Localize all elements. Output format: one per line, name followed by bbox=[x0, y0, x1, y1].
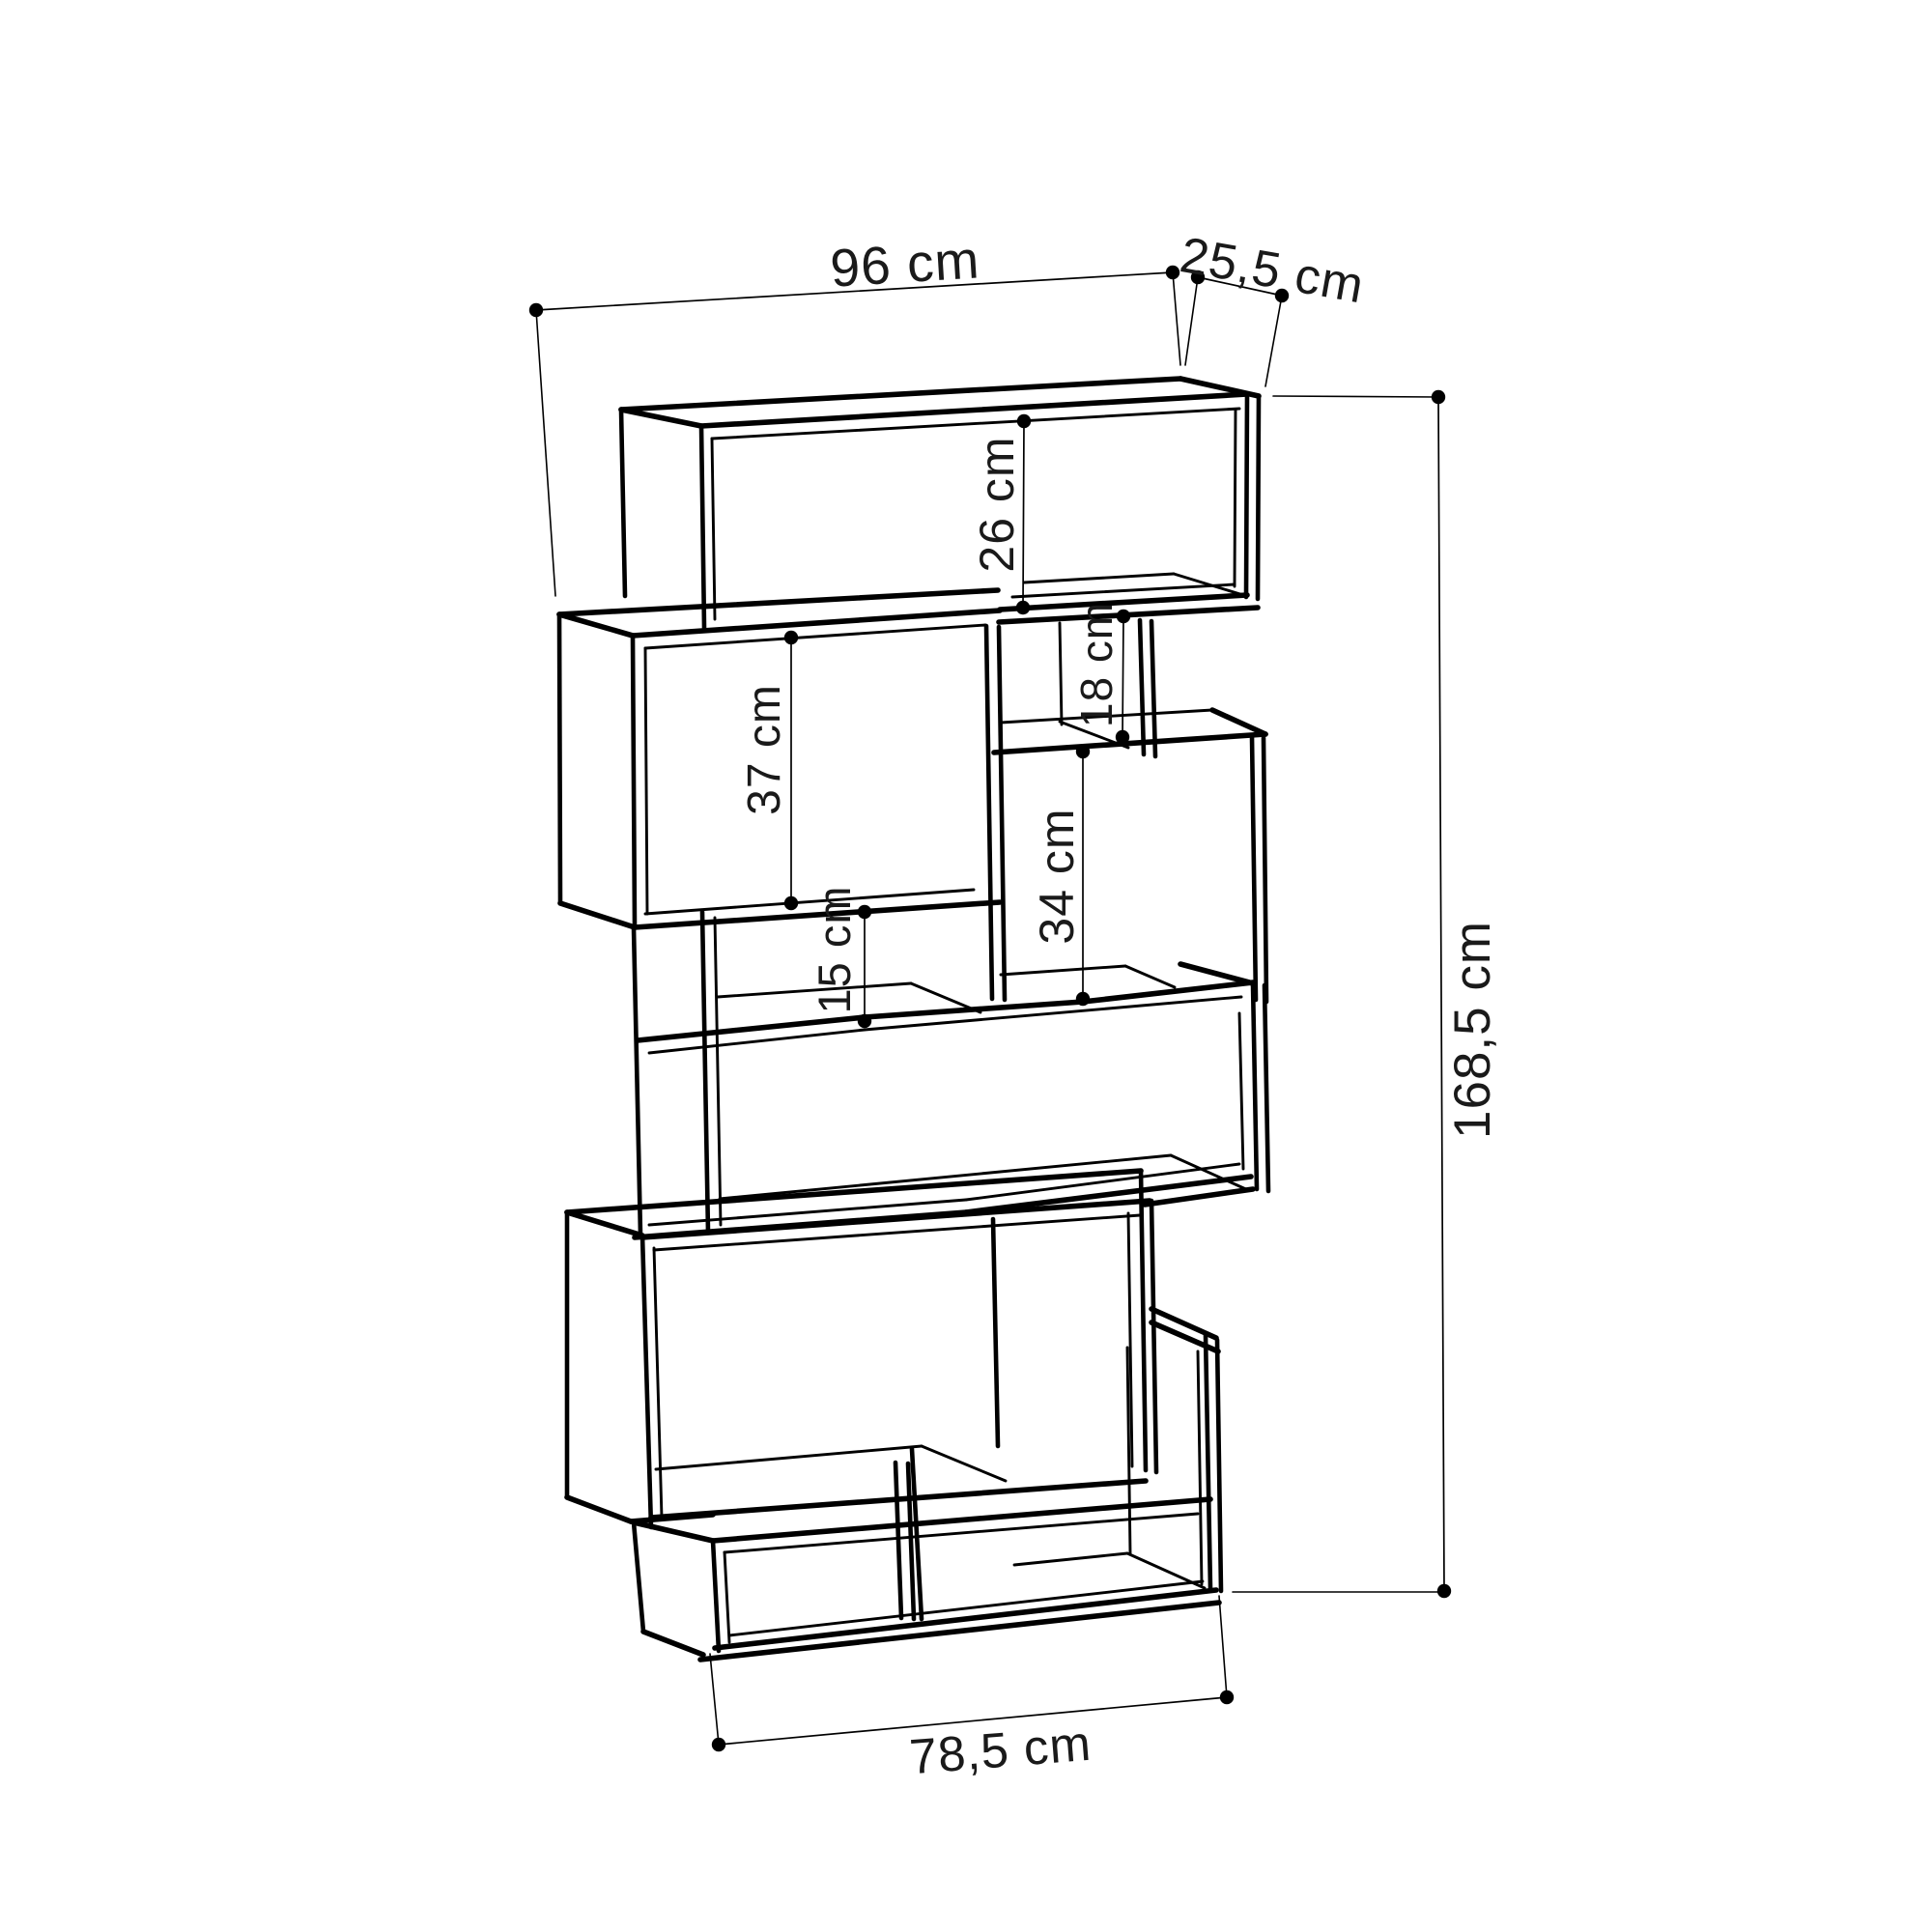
svg-text:15 cm: 15 cm bbox=[809, 886, 860, 1014]
svg-text:18 cm: 18 cm bbox=[1071, 602, 1122, 727]
svg-text:26 cm: 26 cm bbox=[970, 436, 1024, 572]
svg-text:34 cm: 34 cm bbox=[1030, 808, 1084, 944]
svg-text:37 cm: 37 cm bbox=[739, 684, 790, 815]
svg-text:96 cm: 96 cm bbox=[829, 229, 981, 298]
svg-text:168,5 cm: 168,5 cm bbox=[1444, 921, 1501, 1139]
